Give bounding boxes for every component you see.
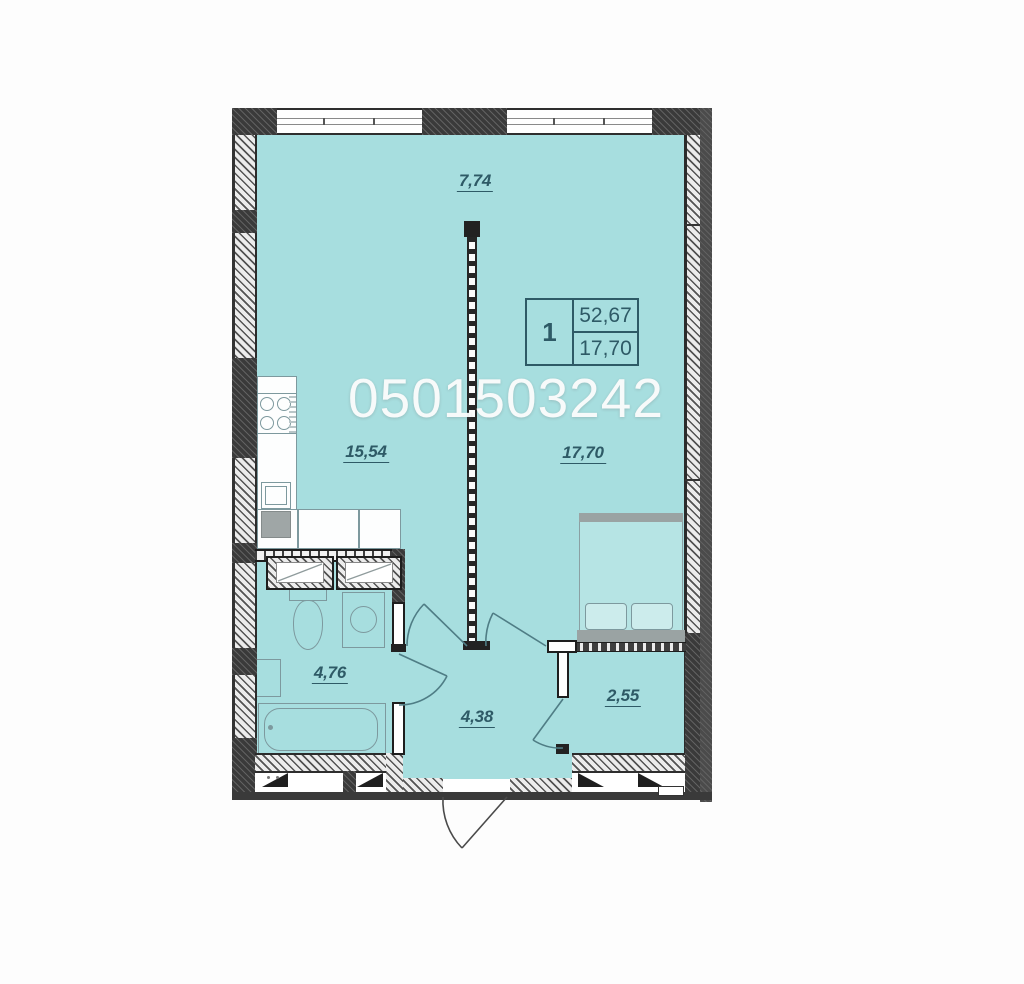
bottom-wall-right — [572, 753, 685, 772]
left-wall-pier — [232, 543, 257, 563]
wall-joint — [685, 479, 700, 481]
wardrobe-area-label: 2,55 — [605, 686, 641, 706]
floor-plan: 7,74 15,54 17,70 4,76 4,38 2,55 1 52,67 … — [0, 0, 1024, 984]
hallway-area-label: 4,38 — [459, 707, 495, 727]
window-bottom-left-1 — [255, 771, 343, 794]
window-top-right — [507, 108, 652, 135]
wall-cap — [391, 644, 406, 652]
bathroom-area-label: 4,76 — [312, 663, 348, 683]
stove-burner-icon — [260, 397, 274, 411]
bottom-outer-band — [232, 792, 712, 800]
bottom-wall-pier — [386, 753, 403, 797]
threshold-step — [658, 786, 684, 796]
room-count: 1 — [527, 300, 574, 364]
top-dimension-label: 7,74 — [457, 171, 493, 191]
window-mark — [267, 776, 270, 779]
bathroom-door-jamb — [392, 702, 405, 755]
kitchen-area-label: 15,54 — [343, 442, 389, 462]
left-wall-pier — [232, 648, 257, 675]
stove-panel — [289, 395, 296, 433]
washing-machine-door-icon — [350, 606, 377, 633]
left-wall-pier — [232, 210, 257, 233]
room-divider-partition — [467, 237, 477, 641]
partition-cap — [464, 221, 480, 237]
toilet-icon — [293, 600, 323, 650]
pillow-icon — [631, 603, 673, 630]
kitchen-sink-basin — [265, 486, 287, 505]
total-area: 52,67 — [574, 300, 637, 333]
watermark-phone-number: 0501503242 — [340, 366, 672, 430]
apartment-info-box: 1 52,67 17,70 — [525, 298, 639, 366]
window-mark — [276, 776, 279, 779]
top-center-pier-wall — [422, 108, 507, 135]
wall-joint — [685, 224, 700, 226]
stove-burner-icon — [260, 416, 274, 430]
bottom-window-pier — [343, 771, 356, 794]
wall-cap — [556, 744, 569, 754]
bottom-wall-left — [255, 753, 397, 772]
left-wall-pier — [232, 358, 257, 458]
left-outer-wall — [232, 135, 257, 800]
counter-divider — [297, 510, 299, 548]
entrance-door-arc — [443, 797, 462, 848]
wardrobe-door-jamb — [557, 651, 569, 698]
bathroom-sink-icon — [255, 659, 281, 697]
entrance-door-leaf — [462, 797, 507, 848]
bedroom-area-label: 17,70 — [560, 443, 606, 463]
pillow-icon — [585, 603, 627, 630]
living-area: 17,70 — [574, 333, 637, 364]
partition-foot — [463, 641, 490, 650]
bathtub-drain-icon — [268, 725, 273, 730]
bathroom-door-jamb — [392, 602, 405, 646]
under-counter-appliance-icon — [261, 511, 291, 538]
top-left-corner-wall — [232, 108, 277, 135]
vent-shaft-duct — [276, 562, 324, 583]
window-top-left — [277, 108, 422, 135]
right-wall-pier — [685, 633, 700, 800]
right-outer-band — [700, 108, 712, 802]
bed-headboard — [579, 513, 683, 522]
vent-shaft-duct — [345, 562, 393, 583]
left-wall-corner — [232, 738, 257, 800]
bathtub-basin — [264, 708, 378, 751]
counter-divider — [358, 510, 360, 548]
